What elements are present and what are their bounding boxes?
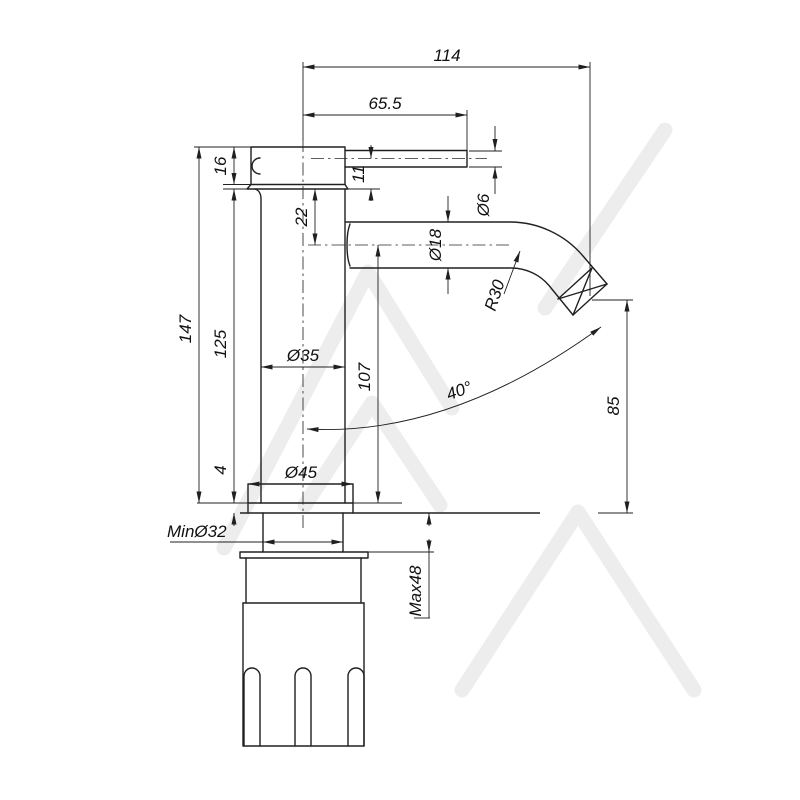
dim-label-base-height: 4 [211,465,230,474]
head-indicator-arc [252,158,260,174]
dim-label-body-dia: Ø35 [286,346,320,365]
mounting-nut-body [243,603,364,746]
dim-label-spout-height: 107 [355,362,374,391]
dim-label-handle-reach: 65.5 [368,94,402,113]
nut-slot-middle [295,668,311,746]
mounting-nut-upper [243,558,364,603]
dim-label-outlet-height: 85 [604,396,623,415]
mounting-washer [240,552,368,558]
tap-dimension-drawing: 114 65.5 16 11 Ø6 22 Ø18 R30 147 125 Ø35… [0,0,800,800]
dim-label-handle-drop: 11 [349,165,368,183]
technical-drawing-canvas: 114 65.5 16 11 Ø6 22 Ø18 R30 147 125 Ø35… [0,0,800,800]
dim-label-handle-dia: Ø6 [474,193,493,217]
tap-outline [240,147,607,746]
dim-label-spout-dia: Ø18 [426,228,445,262]
dim-label-total-width: 114 [433,46,460,65]
body-column-left [255,189,261,503]
dim-label-base-dia: Ø45 [284,463,318,482]
dim-label-max-counter: Max48 [406,565,425,617]
tap-head [251,147,345,185]
dim-label-spray-angle: 40° [444,377,475,404]
dim-label-bend-radius: R30 [481,277,509,313]
dim-label-total-height: 147 [176,314,195,343]
head-collar-ring [247,185,348,190]
dim-label-spout-offset: 22 [292,207,311,227]
dim-label-body-height: 125 [211,329,230,358]
nut-slot-right [348,668,364,746]
dim-label-min-hole: MinØ32 [167,522,227,541]
nut-slot-left [244,668,260,746]
dim-label-head-height: 16 [211,156,230,175]
